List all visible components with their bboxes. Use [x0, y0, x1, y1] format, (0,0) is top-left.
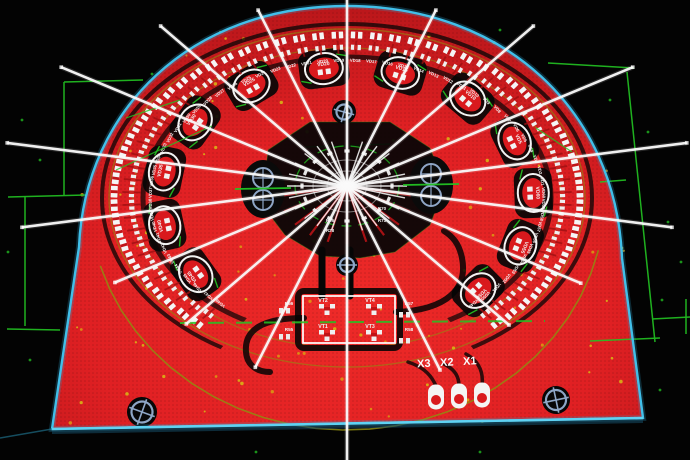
connector-label: X1	[463, 355, 477, 368]
marker-led-label: VD60	[534, 186, 540, 199]
ring-led: VD19	[331, 31, 344, 63]
box-resistor-label: R55	[285, 327, 294, 332]
ring-designator: VD1	[539, 177, 545, 187]
transistor-label: VT4	[365, 298, 375, 304]
ring-designator: VD38	[148, 198, 153, 210]
hub-resistor-label: R70	[378, 206, 387, 211]
transistor-label: VT2	[318, 298, 328, 304]
connector-label: X3	[417, 358, 431, 371]
pcb-canvas[interactable]: VD45VD40VD35VD30VD25VD20VD15VD10VD5VD60V…	[0, 0, 690, 460]
ring-led: VD18	[350, 31, 363, 63]
marker-led: VD20	[297, 47, 351, 91]
box-resistor-label: R58	[405, 327, 414, 332]
ring-designator: VD37	[148, 187, 153, 199]
ring-designator: VD19	[333, 58, 345, 63]
ring-designator: VD60	[541, 187, 546, 199]
connector-label: X2	[440, 356, 454, 369]
ring-designator: VD18	[350, 58, 362, 63]
transistor-label: VT3	[365, 324, 375, 330]
pcb-cad-viewport[interactable]: VD45VD40VD35VD30VD25VD20VD15VD10VD5VD60V…	[0, 0, 690, 460]
transistor-label: VT1	[318, 324, 328, 330]
